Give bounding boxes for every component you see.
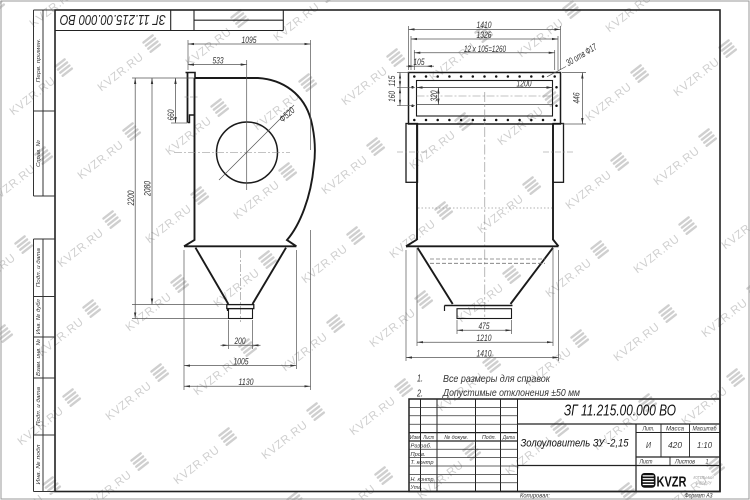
svg-text:Допустимые отклонения ±50 мм: Допустимые отклонения ±50 мм [442, 387, 580, 399]
svg-text:1410: 1410 [477, 348, 493, 359]
svg-text:Дата: Дата [502, 435, 515, 441]
svg-text:Масштаб: Масштаб [693, 426, 717, 433]
svg-text:160: 160 [387, 91, 398, 102]
svg-text:Подп.: Подп. [482, 435, 496, 441]
svg-text:2.: 2. [416, 388, 423, 400]
svg-text:1: 1 [706, 458, 709, 465]
svg-text:446: 446 [572, 92, 583, 103]
svg-text:1.: 1. [417, 373, 423, 385]
svg-text:Формат А3: Формат А3 [685, 492, 713, 499]
svg-text:1326: 1326 [477, 30, 493, 41]
svg-text:1095: 1095 [242, 35, 258, 46]
svg-text:Взам. инв. №: Взам. инв. № [36, 339, 42, 376]
svg-text:105: 105 [414, 57, 425, 68]
svg-text:475: 475 [479, 321, 490, 332]
svg-text:ЗГ 11.215.00.000 ВО: ЗГ 11.215.00.000 ВО [60, 11, 166, 27]
svg-text:Утв.: Утв. [410, 485, 423, 491]
svg-text:КОТЕЛЬНЫЙ: КОТЕЛЬНЫЙ [694, 475, 714, 480]
svg-text:Копировал:: Копировал: [520, 492, 550, 499]
svg-text:Листов: Листов [674, 458, 696, 465]
svg-text:320: 320 [429, 90, 440, 101]
svg-text:Пров.: Пров. [411, 452, 426, 458]
svg-text:660: 660 [166, 109, 177, 120]
svg-text:Справ. №: Справ. № [36, 140, 42, 167]
svg-text:Лит.: Лит. [642, 426, 655, 433]
svg-text:Н. контр: Н. контр [411, 477, 434, 483]
svg-text:Изм: Изм [410, 435, 420, 441]
svg-text:ЗАВОД.РУ: ЗАВОД.РУ [696, 480, 713, 485]
svg-text:Подп. и дата: Подп. и дата [36, 386, 42, 426]
svg-text:115: 115 [387, 75, 398, 87]
svg-text:Т. контр: Т. контр [411, 460, 434, 466]
svg-text:Масса: Масса [666, 426, 685, 433]
svg-text:Лист: Лист [639, 458, 653, 465]
svg-text:533: 533 [213, 56, 224, 67]
svg-text:2200: 2200 [126, 190, 137, 206]
svg-text:1130: 1130 [239, 377, 255, 388]
svg-text:Инв. № подл: Инв. № подл [36, 444, 42, 485]
svg-text:Золоуловитель ЗУ -2,15: Золоуловитель ЗУ -2,15 [521, 438, 630, 450]
svg-text:1:10: 1:10 [697, 440, 712, 450]
svg-text:№ докум.: № докум. [444, 435, 468, 441]
svg-text:200: 200 [234, 336, 246, 347]
svg-text:2080: 2080 [143, 180, 154, 196]
svg-text:Инв. № дубл: Инв. № дубл [36, 298, 42, 334]
svg-text:1005: 1005 [234, 357, 250, 368]
svg-text:1200: 1200 [517, 78, 533, 89]
svg-text:Лист: Лист [422, 435, 434, 441]
svg-text:Разраб.: Разраб. [411, 444, 432, 450]
svg-text:1210: 1210 [477, 333, 493, 344]
svg-text:Перв. примен.: Перв. примен. [36, 39, 42, 83]
svg-text:Все размеры для справок: Все размеры для справок [443, 373, 551, 385]
svg-text:И: И [646, 440, 652, 450]
svg-text:420: 420 [668, 440, 682, 450]
svg-text:12 х 105=1260: 12 х 105=1260 [464, 44, 506, 55]
svg-text:KVZR: KVZR [657, 475, 687, 491]
svg-text:Подп. и дата: Подп. и дата [36, 247, 42, 287]
svg-text:ЗГ 11.215.00.000 ВО: ЗГ 11.215.00.000 ВО [564, 403, 676, 420]
